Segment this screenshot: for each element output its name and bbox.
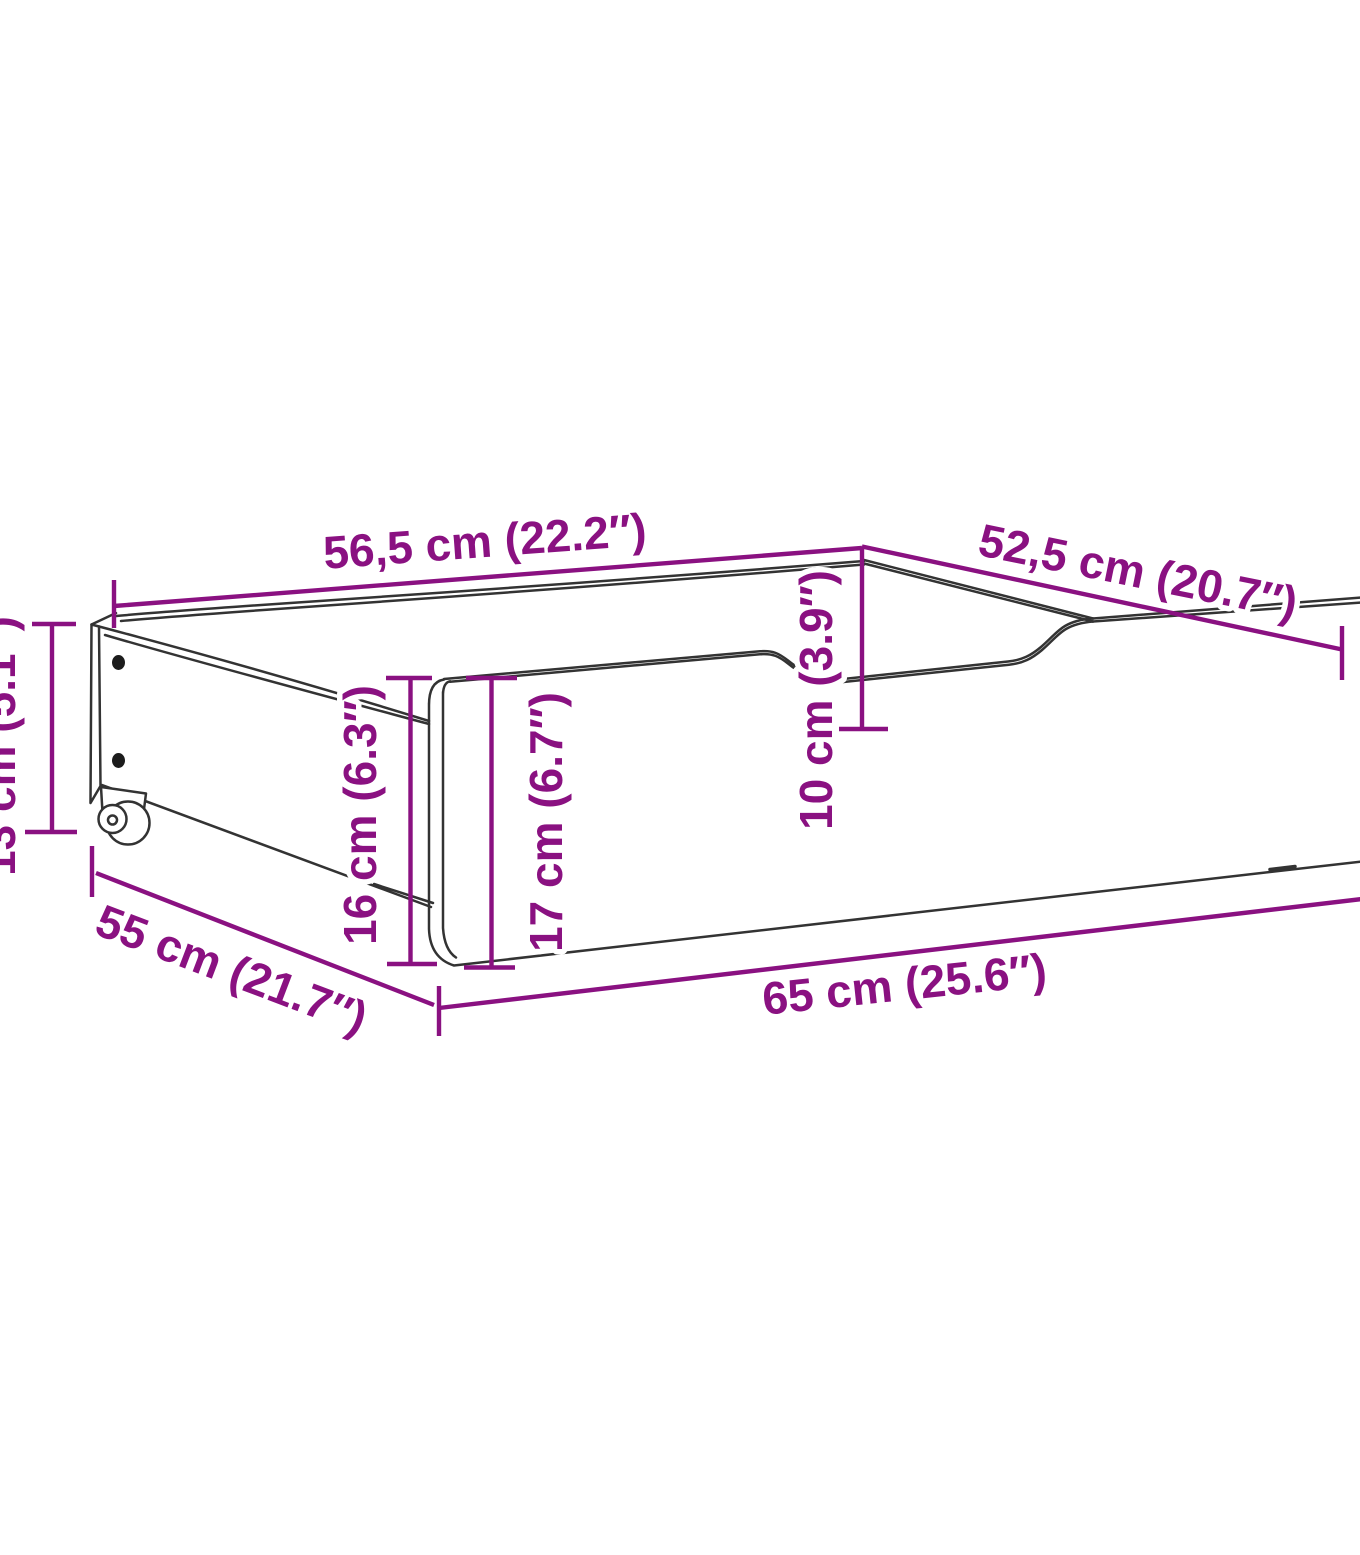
svg-text:16 cm (6.3″): 16 cm (6.3″): [334, 685, 386, 945]
svg-text:10 cm (3.9″): 10 cm (3.9″): [790, 570, 842, 830]
svg-text:17 cm (6.7″): 17 cm (6.7″): [520, 692, 572, 952]
svg-text:13 cm (5.1″): 13 cm (5.1″): [0, 616, 25, 876]
